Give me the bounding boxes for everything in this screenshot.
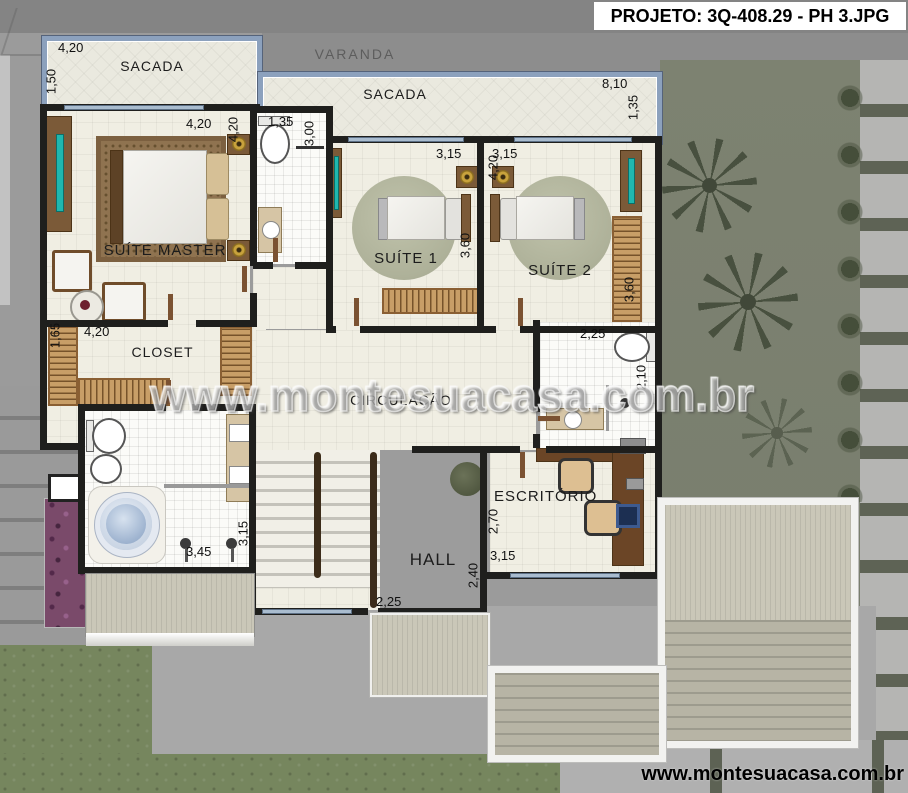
door-suite-master bbox=[242, 266, 247, 292]
wall bbox=[412, 446, 480, 453]
jacuzzi-water bbox=[100, 498, 152, 550]
table-lamp bbox=[460, 170, 474, 184]
tv-screen bbox=[334, 156, 339, 210]
wall bbox=[196, 320, 257, 327]
grass-bottom bbox=[0, 754, 564, 793]
desk-phone bbox=[626, 478, 644, 490]
stair-railing bbox=[370, 452, 377, 608]
dim-suite2-wardrobe: 3,60 bbox=[622, 273, 637, 307]
dim-suite-master-w: 4,20 bbox=[186, 116, 211, 131]
wall bbox=[250, 106, 257, 266]
wall bbox=[78, 404, 85, 574]
shower-stem bbox=[231, 548, 234, 562]
dim-suite1-w: 3,15 bbox=[436, 146, 461, 161]
toilet bbox=[614, 332, 650, 362]
door-suite2 bbox=[518, 298, 523, 326]
tv-screen bbox=[56, 134, 64, 212]
wall bbox=[253, 106, 333, 113]
wall bbox=[360, 326, 496, 333]
window bbox=[64, 105, 204, 110]
pavement-top-right bbox=[660, 33, 908, 63]
sink-basin bbox=[229, 466, 251, 484]
room-label-sacada-top: SACADA bbox=[330, 86, 460, 102]
dim-wc-master-d: 3,00 bbox=[302, 117, 317, 151]
dim-wc-master-w: 1,35 bbox=[268, 114, 293, 129]
dim-suite1-d: 3,60 bbox=[458, 229, 473, 263]
tv-screen bbox=[628, 158, 635, 204]
pillow bbox=[206, 198, 229, 240]
palm-tree bbox=[662, 138, 757, 233]
wall bbox=[326, 106, 333, 333]
roof-section bbox=[86, 574, 254, 636]
window bbox=[348, 137, 464, 142]
room-label-hall: HALL bbox=[406, 550, 460, 570]
roof-edge-highlight bbox=[86, 633, 254, 646]
dim-hall-w: 2,25 bbox=[376, 594, 401, 609]
roof-main-lower bbox=[665, 620, 851, 741]
dim-closet-d: 1,65 bbox=[48, 319, 63, 353]
bidet bbox=[90, 454, 122, 484]
glass-door bbox=[262, 609, 352, 614]
room-label-varanda: VARANDA bbox=[300, 46, 410, 62]
circulation-floor-upper bbox=[253, 267, 327, 329]
dim-sacada-left-w: 4,20 bbox=[58, 40, 83, 55]
room-label-closet: CLOSET bbox=[120, 344, 205, 360]
roof-extension bbox=[488, 666, 666, 762]
palm-tree bbox=[698, 252, 798, 352]
window bbox=[510, 573, 620, 578]
wall bbox=[295, 262, 333, 269]
dim-suite2-d: 4,20 bbox=[486, 151, 501, 185]
dim-office-w: 3,15 bbox=[490, 548, 515, 563]
dim-master-bath-d: 3,15 bbox=[236, 517, 251, 551]
wall bbox=[78, 567, 256, 574]
dim-sacada-top-w: 8,10 bbox=[602, 76, 627, 91]
project-title: PROJETO: 3Q-408.29 - PH 3.JPG bbox=[594, 2, 906, 30]
wall bbox=[253, 262, 273, 269]
wall bbox=[546, 446, 658, 453]
dim-master-bath-w: 3,45 bbox=[186, 544, 211, 559]
door-wc-master bbox=[273, 238, 278, 262]
left-wall-strip bbox=[0, 55, 10, 305]
room-label-sacada-left: SACADA bbox=[92, 58, 212, 74]
bush-row bbox=[832, 78, 868, 502]
sink-basin bbox=[262, 221, 280, 239]
watermark-url-bottom: www.montesuacasa.com.br bbox=[540, 763, 904, 786]
stair-railing bbox=[314, 452, 321, 578]
single-bed bbox=[516, 196, 574, 240]
computer-monitor bbox=[616, 504, 640, 528]
dim-suite-master-d: 4,20 bbox=[226, 113, 241, 147]
armchair bbox=[102, 282, 146, 322]
armchair bbox=[52, 250, 92, 292]
room-label-suite1: SUÍTE 1 bbox=[366, 250, 446, 267]
door-office bbox=[520, 452, 525, 478]
wall bbox=[40, 320, 47, 450]
wall bbox=[40, 104, 47, 327]
hall-plant bbox=[450, 462, 484, 496]
door-suite1 bbox=[354, 298, 359, 326]
bed-headboard bbox=[490, 194, 500, 242]
toilet bbox=[92, 418, 126, 454]
bed-bench bbox=[110, 150, 123, 244]
room-label-escritorio: ESCRITÓRIO bbox=[494, 488, 594, 505]
dim-wc-social-w: 2,25 bbox=[580, 326, 605, 341]
wall bbox=[533, 434, 540, 448]
floor-plan-canvas: SACADA VARANDA SACADA SUÍTE MASTER SUÍTE… bbox=[0, 0, 908, 793]
stairs-landing bbox=[256, 588, 380, 610]
watermark-center: www.montesuacasa.com.br bbox=[150, 368, 908, 424]
dim-closet-w: 4,20 bbox=[84, 324, 109, 339]
bed-throw bbox=[574, 198, 585, 240]
toilet bbox=[260, 124, 290, 164]
pillow bbox=[206, 153, 229, 195]
roof-section bbox=[372, 615, 488, 695]
sink-basin bbox=[229, 424, 251, 442]
room-label-suite2: SUÍTE 2 bbox=[520, 262, 600, 279]
dim-sacada-top-d: 1,35 bbox=[626, 91, 641, 125]
wall bbox=[477, 136, 484, 333]
window bbox=[514, 137, 632, 142]
dim-hall-d: 2,40 bbox=[466, 559, 481, 593]
wall bbox=[486, 446, 520, 453]
table-lamp bbox=[232, 243, 246, 257]
double-bed bbox=[123, 150, 207, 244]
dim-sacada-left-d: 1,50 bbox=[44, 65, 59, 99]
wall bbox=[378, 608, 487, 615]
dim-office-d: 2,70 bbox=[486, 505, 501, 539]
wall bbox=[326, 326, 336, 333]
shower-half-wall bbox=[164, 484, 252, 488]
door-closet bbox=[168, 294, 173, 320]
room-label-suite-master: SUÍTE MASTER bbox=[100, 242, 230, 259]
vase bbox=[80, 300, 90, 310]
single-bed bbox=[387, 196, 445, 240]
wardrobe bbox=[382, 288, 480, 314]
